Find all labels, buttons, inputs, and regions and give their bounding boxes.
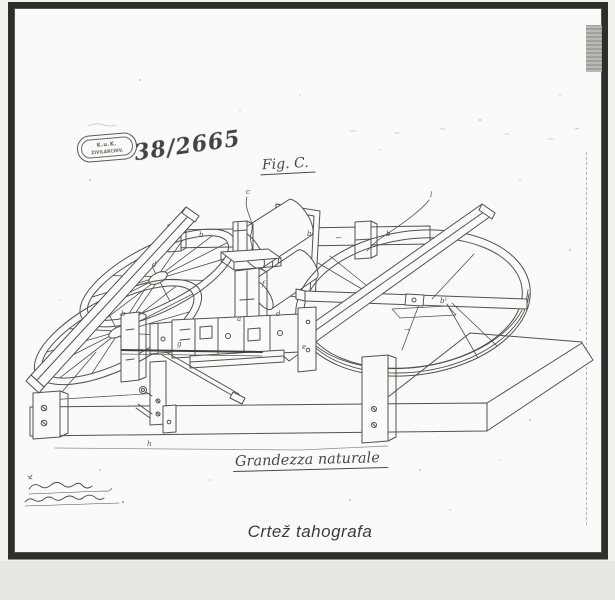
right-flywheel: [286, 215, 540, 390]
left-support-post: [121, 312, 146, 382]
handwritten-signature: [25, 475, 124, 506]
scan-noise: [88, 124, 579, 139]
scanned-document-page: K.u.K. ZIVILARCHIV. 38/2665 Fig. C. Gran…: [0, 0, 615, 600]
tachograph-technical-drawing: [0, 0, 615, 600]
